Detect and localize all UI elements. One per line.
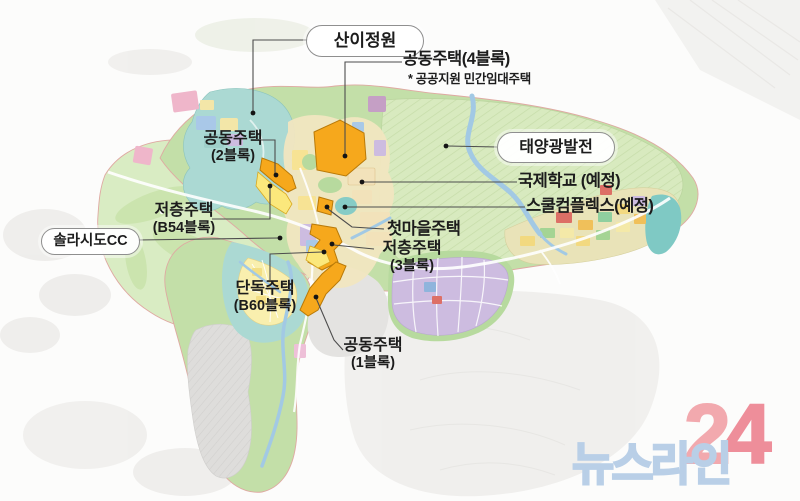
callout-lowrise-b54-line2: (B54블록) <box>140 220 228 236</box>
callout-lowrise-3-line2: (3블록) <box>373 258 451 274</box>
callout-intl-school-label: 국제학교 (예정) <box>518 172 620 190</box>
callout-lowrise-3-line1: 저층주택 <box>383 240 442 257</box>
callout-apt2-line1: 공동주택 <box>204 130 263 147</box>
callout-lowrise-b54: 저층주택 (B54블록) <box>140 202 228 236</box>
callout-apt2: 공동주택 (2블록) <box>196 130 270 164</box>
callout-school-complex: 스쿨컴플렉스(예정) <box>526 197 653 215</box>
callout-lowrise-3: 저층주택 (3블록) <box>373 240 451 274</box>
callout-sani-garden-label: 산이정원 <box>334 31 397 50</box>
callout-intl-school: 국제학교 (예정) <box>518 172 620 190</box>
callout-apt1: 공동주택 (1블록) <box>336 337 410 371</box>
callout-apt2-line2: (2블록) <box>196 148 270 164</box>
callout-apt1-line2: (1블록) <box>336 355 410 371</box>
callout-apt4: 공동주택(4블록) * 공공지원 민간임대주택 <box>403 50 531 86</box>
callout-single-b60-line2: (B60블록) <box>222 298 308 314</box>
callout-apt4-label: 공동주택(4블록) <box>403 50 510 68</box>
callout-first-village-label: 첫마을주택 <box>387 220 460 238</box>
callout-single-b60: 단독주택 (B60블록) <box>222 280 308 314</box>
development-plan-figure: 산이정원 공동주택(4블록) * 공공지원 민간임대주택 태양광발전 국제학교 … <box>0 0 800 501</box>
callout-solar-label: 태양광발전 <box>519 139 593 157</box>
callout-solaseado-cc: 솔라시도CC <box>41 228 140 255</box>
callout-solaseado-cc-label: 솔라시도CC <box>53 233 127 249</box>
callout-single-b60-line1: 단독주택 <box>236 280 295 297</box>
callout-first-village: 첫마을주택 <box>387 220 460 238</box>
callout-lowrise-b54-line1: 저층주택 <box>155 202 214 219</box>
callout-school-complex-label: 스쿨컴플렉스(예정) <box>526 197 653 215</box>
callout-solar: 태양광발전 <box>497 132 615 163</box>
callout-apt4-note: * 공공지원 민간임대주택 <box>403 72 531 86</box>
callout-apt1-line1: 공동주택 <box>344 337 403 354</box>
